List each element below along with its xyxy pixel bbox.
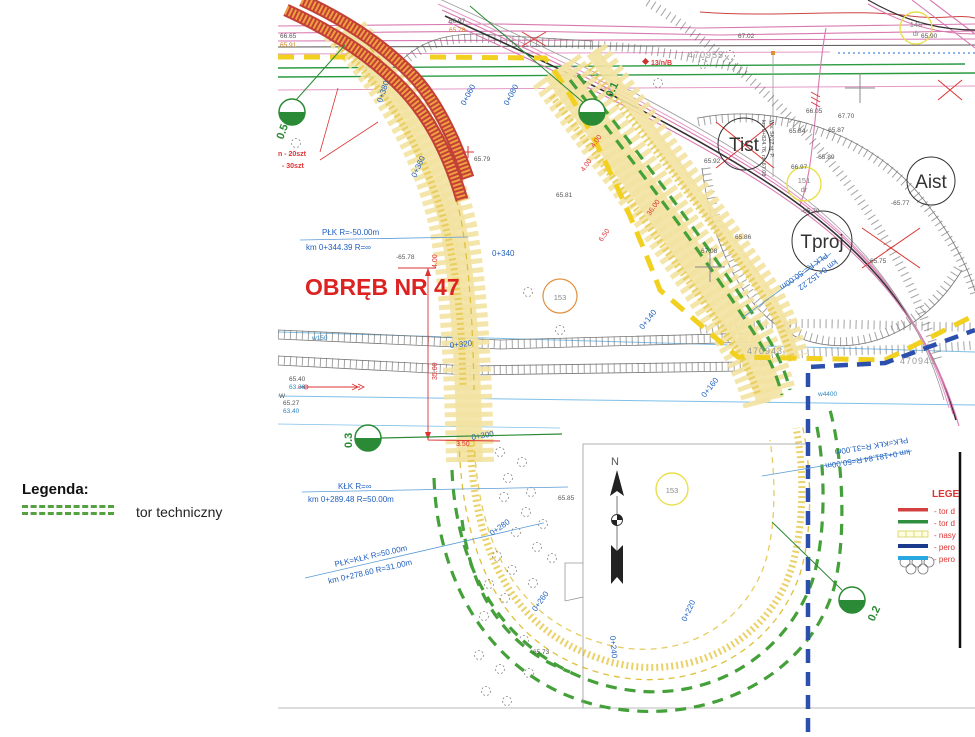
elev: 65.78 — [449, 27, 466, 34]
track-corridors — [333, 30, 802, 667]
elev: 65.85 — [558, 495, 575, 502]
elev: 67.70 — [838, 113, 855, 120]
dim-6-50: 6.50 — [598, 228, 612, 243]
parcel-151: 151 — [798, 176, 811, 185]
w-letter: W — [279, 393, 286, 400]
legend-box-title: LEGE — [932, 489, 960, 500]
dim-35: 35.00 — [432, 362, 439, 380]
elev: 66.97 — [449, 18, 466, 25]
north-label: N — [611, 456, 619, 468]
parcel-148-dr: dr — [913, 29, 920, 38]
legend-title: Legenda: — [22, 481, 262, 498]
parcel-153-a: 153 — [554, 293, 567, 302]
chainage-0-060: 0+060 — [459, 82, 478, 107]
plk-top-l1: PŁK R=-50.00m — [322, 228, 379, 237]
water-w4400: w4400 — [817, 391, 838, 398]
note-13nb: 13/n/B — [651, 60, 672, 67]
water-w150: w150 — [311, 335, 328, 342]
parcel-id-470955: 470955 — [688, 50, 724, 60]
elev: -65.78 — [396, 254, 415, 261]
marker-0-1 — [579, 99, 605, 125]
dim-4-vert: 4.00 — [432, 254, 439, 268]
parcel-151-dr: dr — [801, 185, 808, 194]
site-plan-map: Tist Aist Tproj 148 dr 151 dr 153 153 N — [0, 0, 975, 732]
elev: 66.65 — [280, 33, 297, 40]
parcel-id-470943-a: 470943 — [747, 346, 783, 356]
chainage-0-140: 0+140 — [637, 308, 658, 332]
circle-tproj: Tproj — [800, 232, 843, 253]
circle-tist: Tist — [729, 135, 760, 156]
pole-note: Ws. SK17 st. P. km 0+824.76, rz. 67.08 — [760, 120, 774, 176]
parcel-148: 148 — [910, 20, 923, 29]
elev: 63.40 — [283, 408, 300, 415]
elev: 66.97 — [791, 164, 808, 171]
pole-note-line1: Ws. SK17 st. P. — [768, 120, 774, 158]
pole-note-line2: km 0+824.76, rz. 67.08 — [760, 120, 766, 176]
chainage-0-260: 0+260 — [530, 589, 551, 613]
curve-note-plk-klk-right: PŁK=KŁK R=31.00m km 0+181.84 R=50.00m — [759, 435, 912, 481]
elev: 65.75 — [870, 258, 887, 265]
chainage-0-220: 0+220 — [680, 598, 698, 623]
region-label: OBRĘB NR 47 — [305, 274, 460, 300]
parcel-153-b: 153 — [666, 486, 679, 495]
legend-entry-0: - tor d — [934, 507, 955, 516]
marker-label-0-3: 0.3 — [343, 433, 355, 448]
klk-l1: KŁK R=∞ — [338, 482, 372, 491]
parcel-id-470943-b: 470943 — [900, 356, 936, 366]
legend-entry-2: - nasy — [934, 531, 956, 540]
page: Legenda: tor techniczny — [0, 0, 975, 732]
elev: 65.73 — [533, 649, 550, 656]
elev: 67.02 — [738, 33, 755, 40]
page-legend: Legenda: tor techniczny — [22, 481, 262, 520]
elev: 65.40 — [289, 376, 306, 383]
elev: 65.79 — [474, 156, 491, 163]
legend-entry-1: - tor d — [934, 519, 955, 528]
note-20szt: n - 20szt — [278, 151, 307, 158]
marker-0-2 — [839, 587, 865, 613]
chainage-0-280: 0+280 — [488, 517, 512, 538]
marker-label-0-5: 0.5 — [275, 123, 292, 141]
elev: 65.27 — [283, 400, 300, 407]
legend-swatch-track-green — [898, 520, 928, 524]
chainage-0-080: 0+080 — [502, 82, 521, 107]
chainage-0-160: 0+160 — [699, 376, 720, 400]
klk-l2: km 0+289.48 R=50.00m — [308, 495, 394, 504]
legend-swatch-track-red — [898, 508, 928, 512]
marker-label-0-2: 0.2 — [866, 604, 883, 623]
chainage-0-340: 0+340 — [492, 249, 515, 258]
survey-crosses — [462, 32, 962, 282]
technical-track-dash-sample — [22, 505, 114, 519]
building-outline — [565, 444, 806, 708]
circle-aist: Aist — [915, 172, 947, 193]
legend-swatch-platform-cyan — [898, 556, 928, 560]
dim-3-50: 3.50 — [456, 441, 470, 448]
elev: -65.77 — [891, 200, 910, 207]
elev: 66.05 — [806, 108, 823, 115]
chainage-0-240: 0+240 — [608, 635, 619, 659]
elev: 65.81 — [556, 192, 573, 199]
plk-top-l2: km 0+344.39 R=∞ — [306, 243, 371, 252]
marker-0-5 — [279, 99, 305, 125]
elev: 65.84 — [789, 128, 806, 135]
elev: -65.70 — [801, 208, 820, 215]
elev: 63.36 — [289, 384, 306, 391]
legend-swatch-platform-navy — [898, 544, 928, 548]
elev: -65.89 — [816, 154, 835, 161]
elev: -65.87 — [826, 127, 845, 134]
elev: 65.90 — [921, 33, 938, 40]
map-legend-box: LEGE - tor d - tor d - nasy - pero - per… — [898, 452, 960, 648]
legend-item-label: tor techniczny — [136, 504, 222, 520]
north-arrow: N — [610, 456, 624, 584]
legend-swatch-embankment — [898, 531, 928, 537]
legend-entry-4: - pero — [934, 555, 955, 564]
elev: 65.92 — [704, 158, 721, 165]
elev: 67.08 — [701, 248, 718, 255]
note-30szt: - 30szt — [282, 163, 304, 170]
marker-0-3 — [355, 425, 381, 451]
elev: 65.91 — [280, 42, 297, 49]
elev: 65.86 — [735, 234, 752, 241]
legend-entry-3: - pero — [934, 543, 955, 552]
